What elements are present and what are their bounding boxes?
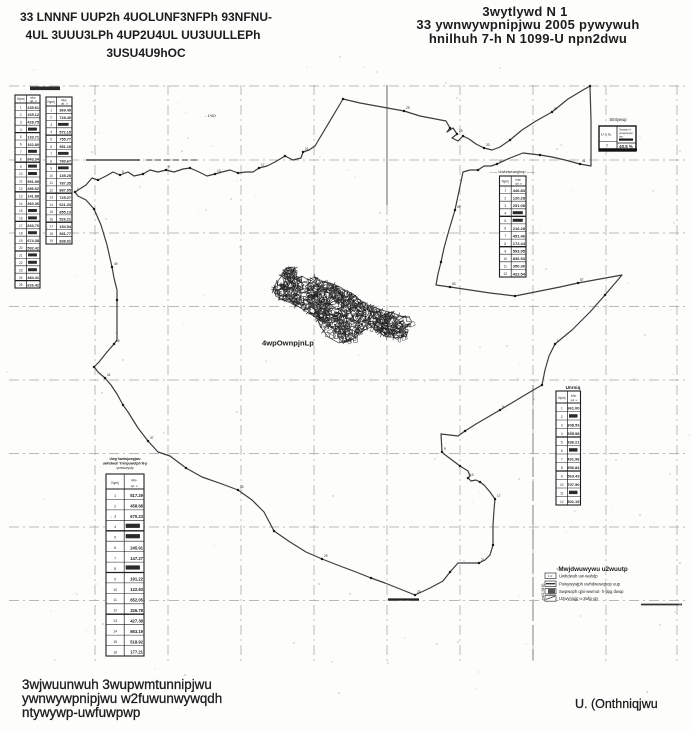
svg-text:836.53: 836.53 (513, 256, 526, 261)
svg-text:621.33: 621.33 (59, 203, 71, 207)
svg-text:Nym|: Nym| (558, 396, 566, 400)
svg-text:41: 41 (582, 159, 586, 163)
svg-text:Nym|: Nym| (111, 481, 119, 485)
svg-text:14: 14 (113, 630, 117, 634)
svg-text:526.21: 526.21 (59, 218, 71, 222)
svg-text:9: 9 (50, 167, 52, 171)
svg-text:23: 23 (19, 268, 23, 272)
svg-text:3USU4U9hOC: 3USU4U9hOC (106, 46, 186, 60)
svg-text:25: 25 (417, 590, 421, 594)
svg-text:458.68: 458.68 (130, 504, 143, 509)
svg-text:674.38: 674.38 (27, 239, 39, 243)
svg-text:7: 7 (561, 457, 563, 461)
svg-text:29: 29 (459, 129, 463, 133)
svg-text:951.99: 951.99 (27, 180, 39, 184)
svg-text:U. (Onthniqjwu: U. (Onthniqjwu (575, 697, 658, 711)
svg-text:6: 6 (561, 449, 563, 453)
svg-text:5: 5 (504, 219, 506, 223)
svg-text:U·q tu.: U·q tu. (601, 133, 612, 137)
svg-text:57: 57 (580, 278, 584, 282)
svg-text:446.83: 446.83 (513, 188, 526, 193)
svg-text:24: 24 (19, 276, 23, 280)
svg-text:17: 17 (19, 224, 23, 228)
svg-text:13: 13 (470, 473, 474, 477)
svg-text:·Mwjdwuwywu u2wuutp: ·Mwjdwuwywu u2wuutp (556, 566, 628, 573)
svg-text:ntywywp-uwfuwpwp: ntywywp-uwfuwpwp (22, 705, 140, 720)
svg-text:2: 2 (606, 144, 608, 148)
svg-text:141.88: 141.88 (27, 195, 39, 199)
svg-text:3: 3 (114, 515, 116, 519)
svg-text:120.28: 120.28 (513, 196, 526, 201)
svg-text:4: 4 (561, 432, 563, 436)
svg-text:25: 25 (19, 283, 23, 287)
svg-text:308.53: 308.53 (567, 423, 580, 428)
svg-text:360.36: 360.36 (27, 202, 39, 206)
svg-text:Nym|: Nym| (502, 180, 510, 184)
svg-text:53: 53 (452, 282, 456, 286)
svg-text:6: 6 (504, 227, 506, 231)
svg-text:ywnwywpnipjwu w2fuwunwywqdh: ywnwywpnipjwu w2fuwunwywqdh (22, 691, 222, 706)
svg-text:4UL 3UUU3LPh 4UP2U4UL UU3UULLE: 4UL 3UUU3LPh 4UP2U4UL UU3UULLEPh (26, 28, 261, 42)
svg-text:7: 7 (50, 152, 52, 156)
svg-text:11: 11 (560, 491, 564, 495)
svg-text:8: 8 (20, 157, 22, 161)
svg-text:Unrniq: Unrniq (566, 385, 581, 390)
svg-text:592.42: 592.42 (27, 246, 39, 250)
svg-text:37: 37 (150, 436, 154, 440)
svg-text:1: 1 (77, 187, 79, 191)
svg-text:787.35: 787.35 (59, 181, 71, 185)
svg-text:326.78: 326.78 (130, 608, 143, 613)
svg-text:49: 49 (457, 205, 461, 209)
svg-text:981.18: 981.18 (59, 145, 71, 149)
svg-text:ynnhuwyutp: ynnhuwyutp (116, 466, 133, 470)
svg-text:Uwhdwuh uw·wahdp: Uwhdwuh uw·wahdp (559, 573, 598, 578)
svg-text:45: 45 (499, 159, 503, 163)
svg-text:2: 2 (50, 116, 52, 120)
svg-text:707.90: 707.90 (567, 482, 580, 487)
svg-text:8: 8 (50, 159, 52, 163)
svg-text:518.92: 518.92 (130, 639, 143, 644)
svg-text:13: 13 (49, 196, 53, 200)
svg-text:33 ywnwywpnipjwu 2005 pywywuh: 33 ywnwywpnipjwu 2005 pywywuh (416, 17, 639, 32)
svg-text:12: 12 (19, 187, 23, 191)
svg-text:422.54: 422.54 (513, 271, 526, 276)
svg-text:10: 10 (113, 588, 117, 592)
svg-text:133.71: 133.71 (27, 135, 39, 139)
svg-text:21: 21 (481, 558, 485, 562)
svg-text:tpljp.: tpljp. (131, 478, 138, 482)
svg-text:3: 3 (20, 120, 22, 124)
svg-text:5: 5 (122, 170, 124, 174)
svg-text:qd. u: qd. u (61, 102, 68, 106)
svg-text:336.21: 336.21 (567, 440, 580, 445)
svg-text:216.28: 216.28 (513, 226, 526, 231)
svg-text:15: 15 (49, 210, 53, 214)
svg-text:22: 22 (19, 261, 23, 265)
svg-text:135.25: 135.25 (59, 174, 71, 178)
svg-text:4: 4 (20, 128, 22, 132)
svg-text:5: 5 (114, 536, 116, 540)
svg-text:5: 5 (502, 405, 504, 409)
svg-text:251.08: 251.08 (513, 203, 526, 208)
svg-text:6: 6 (50, 145, 52, 149)
svg-text:350.30: 350.30 (513, 264, 526, 269)
svg-text:12: 12 (560, 500, 564, 504)
svg-text:16: 16 (113, 650, 117, 654)
svg-text:428.75: 428.75 (27, 121, 39, 125)
svg-text:484.41: 484.41 (27, 276, 39, 280)
svg-text:7: 7 (20, 150, 22, 154)
svg-text:172.44: 172.44 (513, 241, 526, 246)
svg-text:755.77: 755.77 (59, 138, 71, 142)
svg-text:833.70: 833.70 (27, 224, 39, 228)
svg-text:9: 9 (444, 447, 446, 451)
svg-text:3wjwuunwuh 3wupwmtunnipjwu: 3wjwuunwuh 3wupwmtunnipjwu (22, 677, 212, 692)
svg-text:40.5 %: 40.5 % (619, 144, 633, 149)
svg-text:12: 12 (113, 609, 117, 613)
svg-text:3: 3 (561, 423, 563, 427)
svg-text:191.22: 191.22 (130, 577, 143, 582)
svg-text:1: 1 (561, 406, 563, 410)
svg-text:uwhdwuh Yninpuwotph N-p: uwhdwuh Yninpuwotph N-p (103, 462, 148, 466)
svg-text:14: 14 (19, 202, 23, 206)
svg-text:21: 21 (305, 147, 309, 151)
svg-text:427.38: 427.38 (130, 618, 143, 623)
svg-text:563.43: 563.43 (567, 474, 580, 479)
svg-text:12: 12 (49, 188, 53, 192)
svg-text:817.29: 817.29 (130, 493, 143, 498)
svg-text:235.61: 235.61 (27, 106, 39, 110)
svg-text:qd. u: qd. u (571, 398, 578, 402)
svg-text:593.95: 593.95 (513, 249, 526, 254)
svg-text:9: 9 (561, 474, 563, 478)
svg-text:10: 10 (503, 257, 507, 261)
svg-text:572.15: 572.15 (59, 131, 71, 135)
svg-text:8: 8 (114, 567, 116, 571)
svg-text:2: 2 (20, 113, 22, 117)
svg-text:(wO.919): (wO.919) (540, 583, 545, 600)
svg-text:122.93: 122.93 (130, 587, 143, 592)
svg-text:15: 15 (113, 640, 117, 644)
svg-text:9: 9 (504, 249, 506, 253)
svg-text:4: 4 (114, 525, 116, 529)
svg-text:11: 11 (113, 598, 117, 602)
svg-text:11: 11 (19, 180, 23, 184)
svg-text:1: 1 (114, 494, 116, 498)
svg-text:45: 45 (116, 339, 120, 343)
svg-text:855.13: 855.13 (59, 210, 71, 214)
svg-text:1: 1 (504, 189, 506, 193)
svg-text:5: 5 (20, 135, 22, 139)
svg-text:1: 1 (50, 108, 52, 112)
svg-text:11: 11 (50, 181, 54, 185)
svg-text:535.98: 535.98 (567, 431, 580, 436)
svg-text:887.05: 887.05 (59, 189, 71, 193)
svg-text:154.54: 154.54 (59, 225, 72, 229)
svg-text:33 LNNNF UUP2h 4UOLUNF3NFPh 9: 33 LNNNF UUP2h 4UOLUNF3NFPh 93NFNU- (20, 10, 272, 24)
svg-text:4: 4 (50, 130, 52, 134)
svg-text:—— Uwhdwuwghop ——: —— Uwhdwuwghop —— (489, 169, 534, 174)
svg-text:728.40: 728.40 (59, 116, 71, 120)
svg-text:10: 10 (19, 172, 23, 176)
svg-text:18: 18 (49, 232, 53, 236)
svg-text:16: 16 (19, 217, 23, 221)
svg-text:652.05: 652.05 (130, 598, 143, 603)
svg-text:5: 5 (561, 440, 563, 444)
svg-text:801.19: 801.19 (567, 499, 580, 504)
svg-text:14: 14 (49, 203, 53, 207)
svg-text:tpljp.: tpljp. (571, 393, 578, 397)
svg-text:456.62: 456.62 (27, 187, 39, 191)
svg-text:19: 19 (19, 239, 23, 243)
svg-text:- 1*60: - 1*60 (205, 113, 216, 118)
svg-text:18: 18 (19, 231, 23, 235)
svg-text:2: 2 (114, 504, 116, 508)
svg-text:245.91: 245.91 (130, 545, 143, 550)
svg-text:17: 17 (49, 225, 53, 229)
svg-text:U2wyniujp u·2wlp·qn: U2wyniujp u·2wlp·qn (559, 596, 599, 601)
svg-text:13: 13 (113, 619, 117, 623)
svg-text:863.19: 863.19 (130, 629, 143, 634)
svg-text:Nym|: Nym| (17, 97, 25, 101)
svg-text:7: 7 (504, 234, 506, 238)
svg-text:9: 9 (114, 577, 116, 581)
svg-text:17: 17 (497, 494, 501, 498)
svg-text:838.91: 838.91 (59, 239, 71, 243)
svg-text:12: 12 (503, 272, 507, 276)
svg-text:Nym|: Nym| (48, 100, 56, 104)
svg-text:3: 3 (50, 123, 52, 127)
svg-text:780.67: 780.67 (59, 160, 71, 164)
svg-text:41: 41 (107, 373, 111, 377)
svg-text:11: 11 (504, 265, 508, 269)
svg-text:8: 8 (504, 242, 506, 246)
svg-text:6: 6 (114, 546, 116, 550)
svg-text:4: 4 (504, 211, 506, 215)
svg-text:843.34: 843.34 (27, 158, 40, 162)
svg-text:147.27: 147.27 (130, 556, 143, 561)
svg-text:15: 15 (19, 209, 23, 213)
svg-text:2: 2 (561, 415, 563, 419)
svg-text:165.12: 165.12 (27, 113, 39, 117)
svg-text:2: 2 (504, 196, 506, 200)
svg-text:25: 25 (406, 106, 410, 110)
svg-text:49: 49 (114, 262, 118, 266)
svg-text:Puwywywjph uwhdwuwqhop uup: Puwywywjph uwhdwuwqhop uup (559, 581, 621, 586)
svg-text:Uwg hwdwjuwpjwu: Uwg hwdwjuwpjwu (110, 457, 141, 461)
svg-text:5: 5 (50, 138, 52, 142)
svg-text:670.23: 670.23 (130, 514, 143, 519)
svg-text:qd. u: qd. u (515, 182, 522, 186)
svg-text:681.77: 681.77 (59, 232, 71, 236)
svg-text:177.21: 177.21 (130, 650, 143, 655)
svg-text:431.96: 431.96 (567, 457, 580, 462)
svg-text:29: 29 (324, 554, 328, 558)
svg-text:10: 10 (560, 483, 564, 487)
svg-text:451.46: 451.46 (513, 233, 526, 238)
svg-text:369.49: 369.49 (59, 109, 71, 113)
svg-text:725.07: 725.07 (59, 196, 71, 200)
svg-text:4wpOwnpjnLp: 4wpOwnpjnLp (262, 339, 314, 348)
svg-text:33: 33 (240, 485, 244, 489)
svg-text:19: 19 (49, 239, 53, 243)
svg-text:Stntywup: Stntywup (609, 117, 627, 122)
svg-text:7: 7 (114, 557, 116, 561)
svg-text:9: 9 (168, 165, 170, 169)
svg-text:8: 8 (561, 466, 563, 470)
svg-text:qd. u: qd. u (131, 484, 138, 488)
svg-text:961.00: 961.00 (567, 406, 580, 411)
svg-text:17: 17 (261, 163, 265, 167)
svg-text:16: 16 (49, 217, 53, 221)
svg-text:1: 1 (20, 106, 22, 110)
svg-text:13: 13 (217, 169, 221, 173)
svg-text:20: 20 (19, 246, 23, 250)
svg-text:1·0: 1·0 (548, 574, 553, 578)
svg-text:626.42: 626.42 (27, 283, 39, 287)
svg-text:hnilhuh 7-h N 1099-U npn2dwu: hnilhuh 7-h N 1099-U npn2dwu (429, 31, 627, 46)
svg-text:qd. u: qd. u (30, 99, 37, 103)
svg-text:33: 33 (486, 143, 490, 147)
svg-text:13: 13 (19, 194, 23, 198)
svg-text:Swpwoph qjni·wwmut· h·tipg dwu: Swpwoph qjni·wwmut· h·tipg dwup (559, 589, 624, 594)
svg-text:956.84: 956.84 (567, 465, 580, 470)
svg-text:3: 3 (504, 204, 506, 208)
svg-text:6: 6 (20, 143, 22, 147)
svg-text:9: 9 (20, 165, 22, 169)
svg-text:10: 10 (49, 174, 53, 178)
svg-text:21: 21 (19, 254, 23, 258)
svg-text:162.80: 162.80 (27, 143, 39, 147)
svg-text:1: 1 (557, 339, 559, 343)
